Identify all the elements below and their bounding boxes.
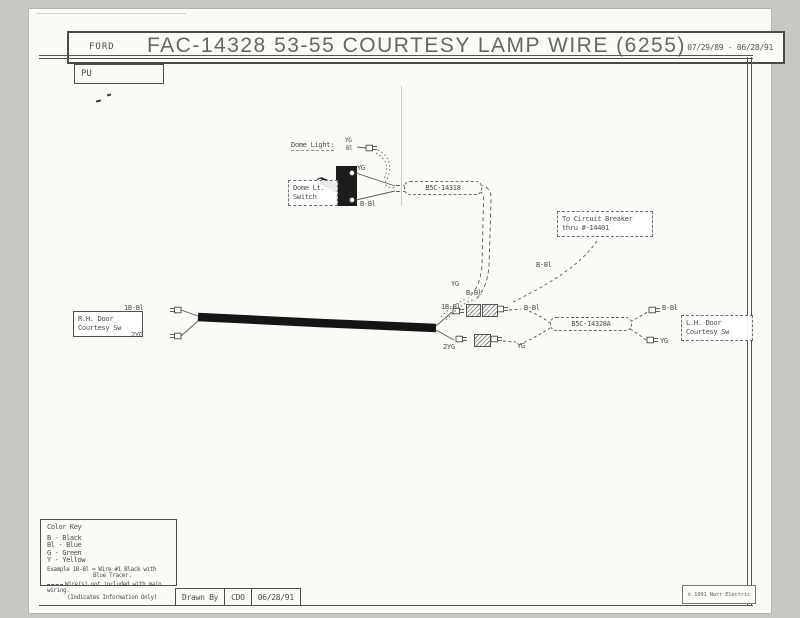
dome-light-label: Dome Light: xyxy=(291,141,334,151)
dashed-wire-sample xyxy=(47,584,63,585)
harness-main-label: B5C-14318 xyxy=(404,181,482,195)
switch-wire-top-label: YG xyxy=(357,164,365,172)
rh-switch-line1: R.H. Door xyxy=(78,315,138,324)
branch-wire-bbl-label: B-Bl xyxy=(466,289,482,297)
dome-switch-callout: Dome Lt. Switch xyxy=(288,180,338,206)
color-key-entry: Y - Yellow xyxy=(47,557,176,565)
drawn-by-value: CDO xyxy=(225,589,252,605)
terminal-icon xyxy=(491,336,502,342)
junction-right-bottom-label: YG xyxy=(517,342,525,350)
dome-light-wire-bottom-label: Bl xyxy=(346,146,353,152)
connector-icon xyxy=(482,304,498,317)
rh-wire-bottom-label: 2YG xyxy=(131,331,143,339)
switch-wire-bottom-label: B-Bl xyxy=(360,200,376,208)
lh-wire-bottom-label: YG xyxy=(660,337,668,345)
rh-wire-top-label: 1B-Bl xyxy=(124,304,144,312)
lh-door-switch-callout: L.H. Door Courtesy Sw xyxy=(681,315,753,341)
dome-light-wire-top-label: YG xyxy=(345,138,352,144)
connector-icon xyxy=(474,334,491,347)
color-key-note-line1: Wire(s) not included with main wiring. xyxy=(47,581,161,595)
lh-switch-line1: L.H. Door xyxy=(686,319,748,328)
circuit-breaker-line1: To Circuit Breaker xyxy=(562,215,648,224)
junction-right-top-label: B-Bl xyxy=(524,304,540,312)
circuit-breaker-line2: thru #-14401 xyxy=(562,224,648,233)
terminal-icon xyxy=(170,333,181,339)
terminal-icon xyxy=(649,307,660,313)
terminal-icon xyxy=(170,307,181,313)
terminal-icon xyxy=(647,337,658,343)
lh-wire-top-label: B-Bl xyxy=(662,304,678,312)
terminal-icon xyxy=(497,306,508,312)
circuit-breaker-callout: To Circuit Breaker thru #-14401 xyxy=(557,211,653,237)
rh-switch-lead-wires xyxy=(181,310,198,336)
circuit-breaker-lead-wire xyxy=(513,241,597,302)
dome-switch-line2: Switch xyxy=(293,193,333,202)
color-key-example-line2: Blue Tracer. xyxy=(93,572,132,579)
color-key-title: Color Key xyxy=(47,524,176,532)
junction-left-bottom-label: 2YG xyxy=(443,343,455,351)
breaker-wire-label: B-Bl xyxy=(536,261,552,269)
branch-wire-yg-label: YG xyxy=(451,280,459,288)
drawn-date: 06/28/91 xyxy=(252,589,300,605)
drawn-by-label: Drawn By xyxy=(176,589,225,605)
junction-left-top-label: 1B-Bl xyxy=(441,303,461,311)
switch-lead-wires xyxy=(356,173,395,200)
rh-switch-line2: Courtesy Sw xyxy=(78,324,138,333)
copyright-notice: © 1991 Narr Electric xyxy=(682,585,756,604)
harness-14318-run xyxy=(396,186,491,302)
harness-lh-label: B5C-14328A xyxy=(550,317,632,331)
main-harness-cable xyxy=(198,317,436,328)
drawn-by-table: Drawn By CDO 06/28/91 xyxy=(175,588,301,606)
connector-icon xyxy=(466,304,481,317)
color-key: Color Key B - Black Bl - Blue G - Green … xyxy=(40,519,177,586)
lh-switch-line2: Courtesy Sw xyxy=(686,328,748,337)
dome-switch-line1: Dome Lt. xyxy=(293,184,333,193)
color-key-note-line2: (Indicates Information Only) xyxy=(67,594,157,601)
terminal-icon xyxy=(456,336,467,342)
